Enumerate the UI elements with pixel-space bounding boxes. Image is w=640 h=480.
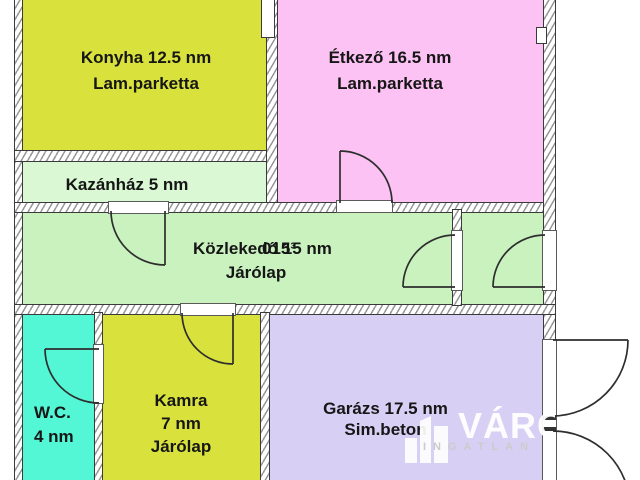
- label-konyha-line2: Lam.parketta: [23, 71, 269, 97]
- door-arc: [553, 431, 630, 480]
- label-kozlekedo: Közlekedő 15 nm 015³: [193, 236, 332, 262]
- door-arc: [111, 211, 165, 265]
- door-arc: [182, 313, 233, 364]
- label-wc-line1: W.C.: [34, 401, 74, 425]
- door-arc: [45, 349, 99, 403]
- label-kamra-line1: Kamra: [100, 389, 262, 412]
- label-kozlekedo-floor: Járólap: [193, 260, 319, 286]
- label-kamra: Kamra 7 nm Járólap: [100, 389, 262, 458]
- label-etkezo: Étkező 16.5 nm Lam.parketta: [310, 45, 470, 97]
- door-arc: [493, 235, 545, 287]
- door-arc: [553, 340, 628, 416]
- label-kozlekedo-overlap-artifact: 015³: [262, 236, 296, 262]
- floor-plan: Konyha 12.5 nm Lam.parketta Étkező 16.5 …: [0, 0, 640, 480]
- door-arc: [340, 151, 392, 203]
- label-kazanhaz: Kazánház 5 nm: [23, 172, 231, 198]
- watermark-tagline-text: INGATLAN: [423, 441, 543, 453]
- label-etkezo-line1: Étkező 16.5 nm: [310, 45, 470, 71]
- label-kazanhaz-line1: Kazánház 5 nm: [23, 172, 231, 198]
- label-konyha-line1: Konyha 12.5 nm: [23, 45, 269, 71]
- label-etkezo-line2: Lam.parketta: [310, 71, 470, 97]
- label-kamra-line3: Járólap: [100, 435, 262, 458]
- label-wc: W.C. 4 nm: [34, 401, 74, 449]
- label-kamra-line2: 7 nm: [100, 412, 262, 435]
- label-kozlekedo-line2: Járólap: [193, 260, 319, 286]
- label-konyha: Konyha 12.5 nm Lam.parketta: [23, 45, 269, 97]
- watermark-buildings-icon: [403, 409, 453, 465]
- door-arc: [403, 235, 455, 287]
- label-wc-line2: 4 nm: [34, 425, 74, 449]
